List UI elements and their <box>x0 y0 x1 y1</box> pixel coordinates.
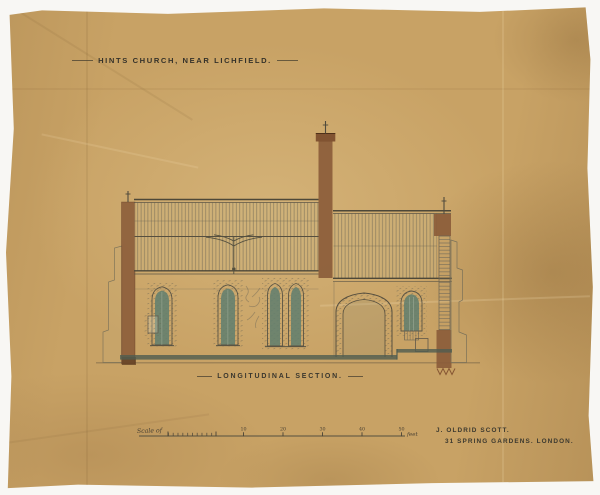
paper-crease <box>502 0 504 495</box>
architect-signature: J. OLDRID SCOTT. 31 SPRING GARDENS. LOND… <box>436 427 574 445</box>
drawing-caption: LONGITUDINAL SECTION. <box>197 373 363 380</box>
architect-address: 31 SPRING GARDENS. LONDON. <box>445 438 574 445</box>
architect-name: J. OLDRID SCOTT. <box>436 427 574 434</box>
paper-crease <box>42 133 199 168</box>
page-title: HINTS CHURCH, NEAR LICHFIELD. <box>98 56 272 65</box>
paper-crease <box>1 413 209 444</box>
paper-crease <box>0 88 600 90</box>
caption-rule-right <box>348 376 363 377</box>
paper-crease <box>86 0 88 495</box>
paper-crease <box>320 295 590 306</box>
drawing-title: HINTS CHURCH, NEAR LICHFIELD. <box>72 56 298 65</box>
title-rule-right <box>277 60 298 61</box>
title-rule-left <box>72 60 93 61</box>
aged-paper-sheet <box>0 0 600 495</box>
caption-text: LONGITUDINAL SECTION. <box>217 373 343 380</box>
caption-rule-left <box>197 376 212 377</box>
